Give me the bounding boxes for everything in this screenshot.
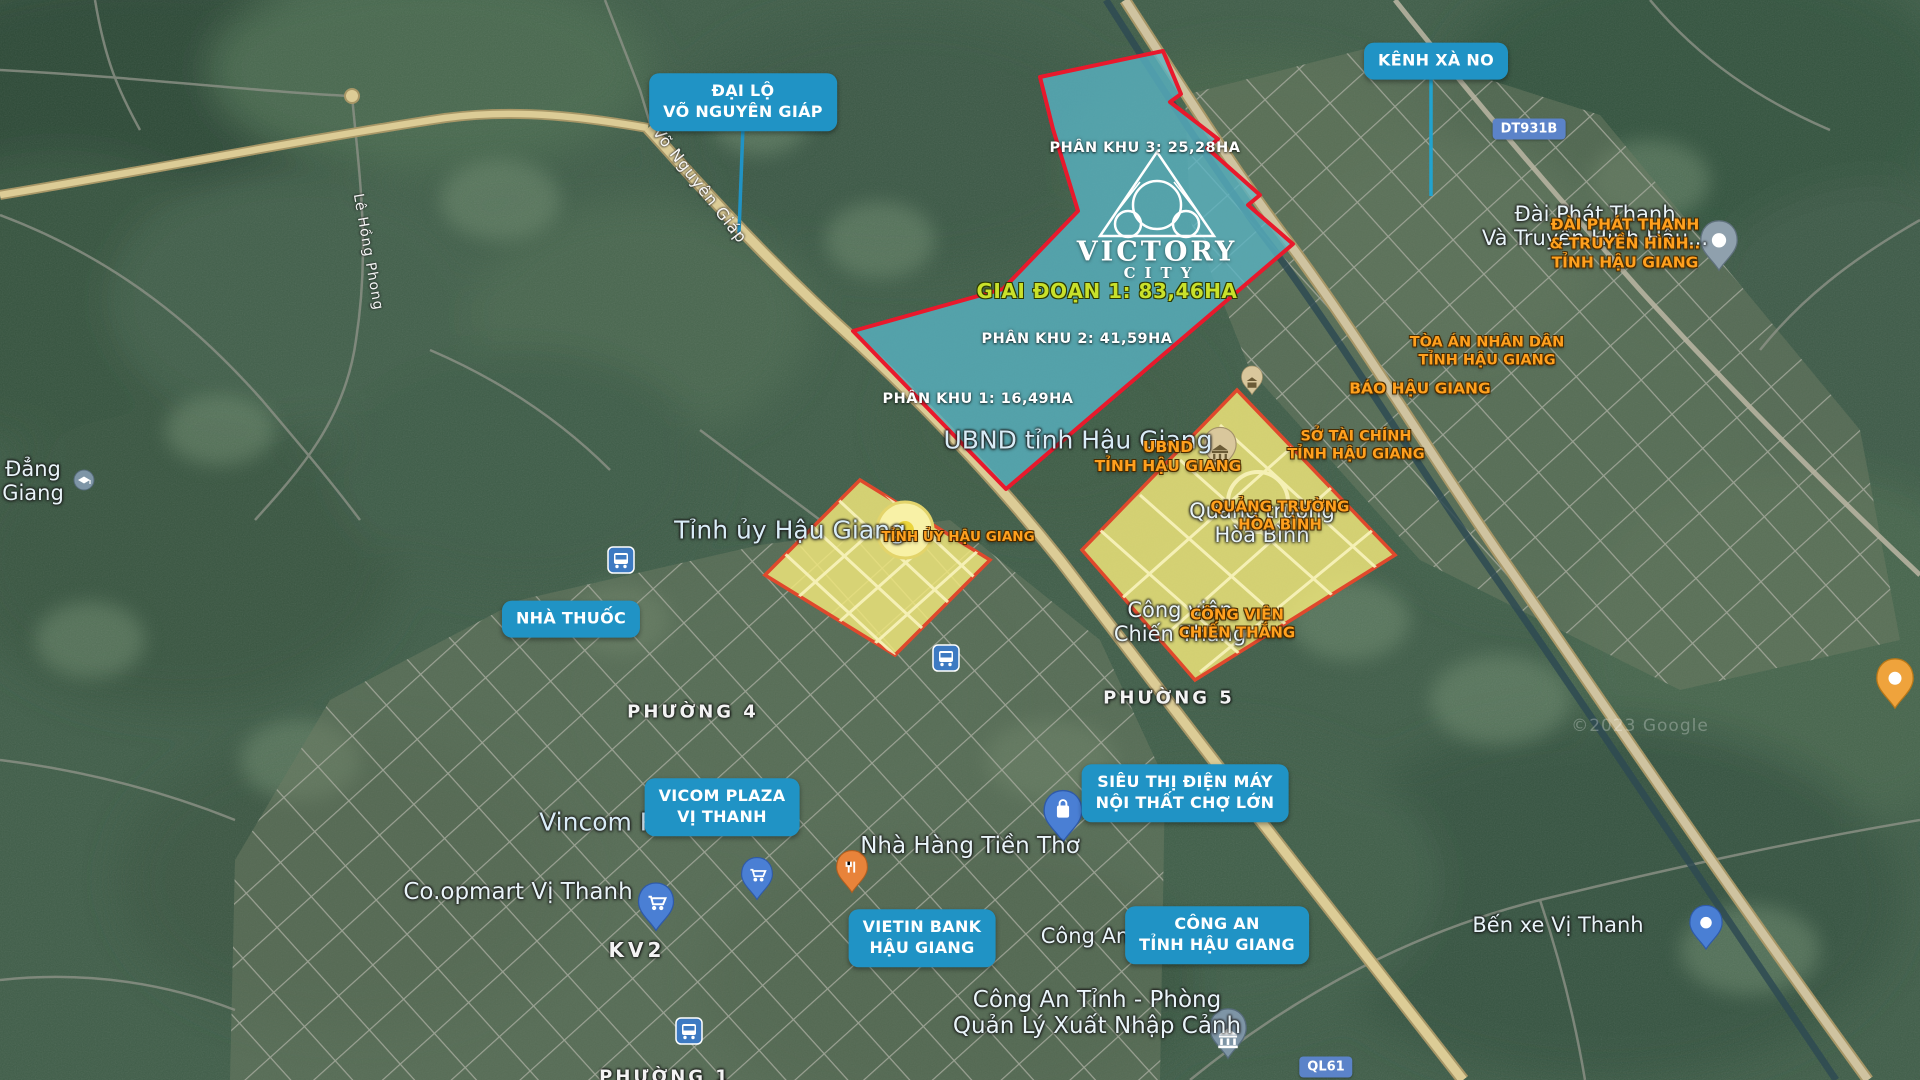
- callout-dai-lo-vo-nguyen-giap[interactable]: ĐẠI LỘ VÕ NGUYÊN GIÁP: [649, 73, 837, 131]
- area-kv2: KV2: [609, 938, 666, 962]
- callout-line: VICOM PLAZA: [659, 786, 786, 807]
- subzone-2-label: PHÂN KHU 2: 41,59HA: [981, 331, 1172, 347]
- place-nha-hang: Nhà Hàng Tiền Thơ: [860, 833, 1080, 859]
- place-line: Giang: [2, 481, 64, 505]
- callout-cong-an[interactable]: CÔNG AN TỈNH HẬU GIANG: [1125, 906, 1309, 964]
- callout-line: SIÊU THỊ ĐIỆN MÁY: [1096, 772, 1275, 793]
- road-badge-dt931b[interactable]: DT931B: [1493, 119, 1566, 140]
- satellite-map: PHÂN KHU 3: 25,28HA PHÂN KHU 2: 41,59HA …: [0, 0, 1920, 1080]
- road-badge-ql61[interactable]: QL61: [1299, 1057, 1352, 1078]
- callout-vicom-plaza[interactable]: VICOM PLAZA VỊ THANH: [645, 778, 800, 836]
- callout-kenh-xa-no[interactable]: KÊNH XÀ NO: [1364, 43, 1508, 80]
- poi-line: TÒA ÁN NHÂN DÂN: [1410, 334, 1565, 352]
- callout-line: CÔNG AN: [1139, 914, 1295, 935]
- subzone-3-label: PHÂN KHU 3: 25,28HA: [1049, 140, 1240, 156]
- ward-phuong-5: PHƯỜNG 5: [1103, 688, 1235, 709]
- poi-line: QUẢNG TRƯỜNG: [1211, 498, 1350, 516]
- place-coopmart: Co.opmart Vị Thanh: [403, 879, 632, 905]
- place-ben-xe: Bến xe Vị Thanh: [1472, 913, 1643, 937]
- callout-nha-thuoc[interactable]: NHÀ THUỐC: [502, 601, 640, 638]
- poi-ubnd: UBND TỈNH HẬU GIANG: [1095, 438, 1242, 476]
- place-dang-giang: Đẳng Giang: [2, 457, 64, 505]
- brand-name: VICTORY: [1077, 237, 1238, 268]
- google-watermark: ©2023 Google: [1571, 716, 1709, 736]
- place-cong-an: Công An: [1041, 924, 1130, 948]
- place-line: Quản Lý Xuất Nhập Cảnh: [953, 1013, 1241, 1039]
- poi-tinh-uy: TỈNH ỦY HẬU GIANG: [881, 529, 1034, 545]
- bus-icon[interactable]: [933, 645, 959, 671]
- ward-phuong-1: PHƯỜNG 1: [599, 1067, 731, 1080]
- poi-line: UBND: [1095, 438, 1242, 457]
- subzone-1-label: PHÂN KHU 1: 16,49HA: [882, 391, 1073, 407]
- brand-subname: CITY: [1124, 264, 1201, 282]
- poi-line: TỈNH HẬU GIANG: [1550, 253, 1701, 272]
- poi-line: TỈNH HẬU GIANG: [1410, 352, 1565, 370]
- poi-bao-hau-giang: BÁO HẬU GIANG: [1349, 380, 1491, 399]
- school-pin-icon[interactable]: [74, 470, 94, 490]
- callout-line: TỈNH HẬU GIANG: [1139, 935, 1295, 956]
- poi-line: CHIẾN THẮNG: [1179, 624, 1295, 642]
- poi-line: & TRUYỀN HÌNH..: [1550, 235, 1701, 254]
- place-line: Đẳng: [2, 457, 64, 481]
- poi-so-tai-chinh: SỞ TÀI CHÍNH TỈNH HẬU GIANG: [1287, 428, 1424, 463]
- callout-line: HẬU GIANG: [863, 938, 982, 959]
- poi-line: TỈNH HẬU GIANG: [1095, 457, 1242, 476]
- poi-line: ĐÀI PHÁT THANH: [1550, 216, 1701, 235]
- bus-icon[interactable]: [608, 547, 634, 573]
- callout-vietin-bank[interactable]: VIETIN BANK HẬU GIANG: [849, 909, 996, 967]
- poi-toa-an: TÒA ÁN NHÂN DÂN TỈNH HẬU GIANG: [1410, 334, 1565, 369]
- poi-cong-vien: CÔNG VIÊN CHIẾN THẮNG: [1179, 606, 1295, 643]
- callout-line: VỊ THANH: [659, 807, 786, 828]
- poi-line: CÔNG VIÊN: [1179, 606, 1295, 624]
- callout-sieu-thi-dien-may[interactable]: SIÊU THỊ ĐIỆN MÁY NỘI THẤT CHỢ LỚN: [1082, 764, 1289, 822]
- poi-dai-phat-thanh: ĐÀI PHÁT THANH & TRUYỀN HÌNH.. TỈNH HẬU …: [1550, 216, 1701, 273]
- callout-line: NỘI THẤT CHỢ LỚN: [1096, 793, 1275, 814]
- poi-quang-truong: QUẢNG TRƯỜNG HÒA BÌNH: [1211, 498, 1350, 535]
- callout-line: VÕ NGUYÊN GIÁP: [663, 102, 823, 123]
- callout-line: ĐẠI LỘ: [663, 81, 823, 102]
- phase-1-label: GIAI ĐOẠN 1: 83,46HA: [976, 279, 1237, 303]
- place-cong-an-phong: Công An Tỉnh - Phòng Quản Lý Xuất Nhập C…: [953, 987, 1241, 1039]
- poi-line: HÒA BÌNH: [1211, 516, 1350, 534]
- callout-line: VIETIN BANK: [863, 917, 982, 938]
- poi-line: SỞ TÀI CHÍNH: [1287, 428, 1424, 446]
- ward-phuong-4: PHƯỜNG 4: [627, 702, 759, 723]
- bus-icon[interactable]: [676, 1018, 702, 1044]
- place-vincom: Vincom P: [539, 808, 655, 837]
- place-tinh-uy: Tỉnh ủy Hậu Giang: [674, 516, 906, 545]
- place-line: Công An Tỉnh - Phòng: [953, 987, 1241, 1013]
- poi-line: TỈNH HẬU GIANG: [1287, 446, 1424, 464]
